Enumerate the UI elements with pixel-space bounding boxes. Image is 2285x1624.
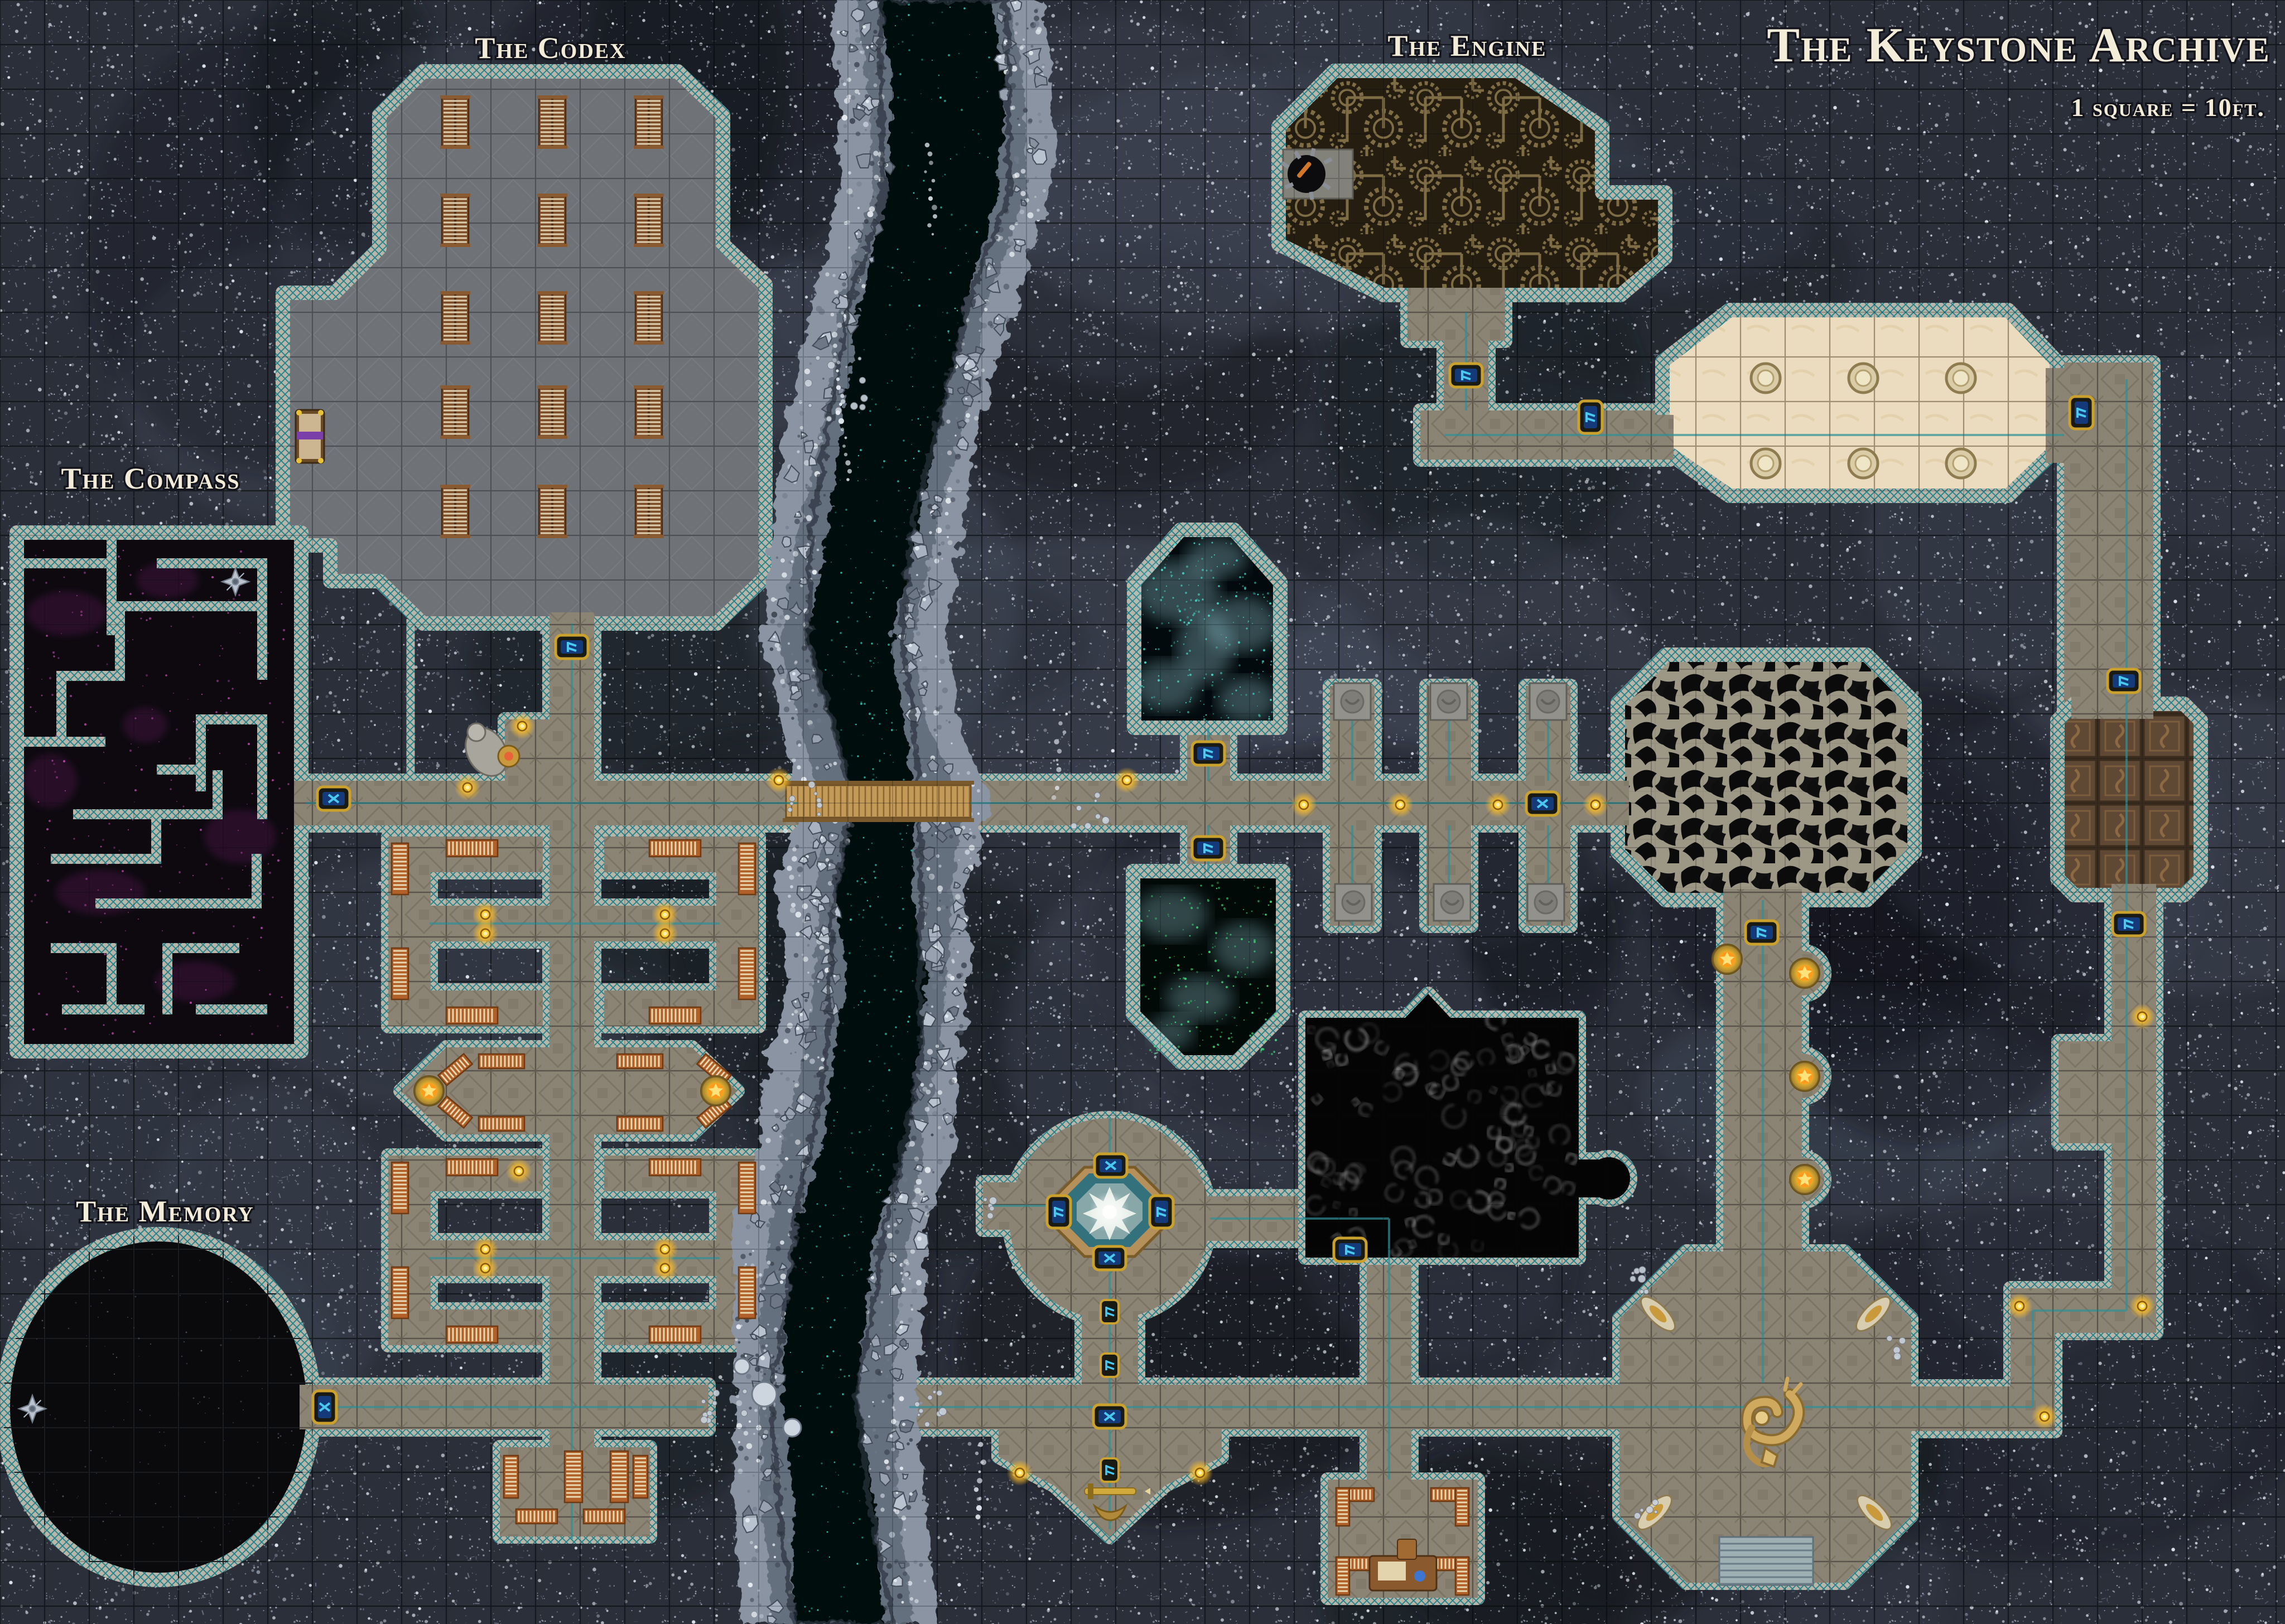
svg-text:The Memory: The Memory xyxy=(76,1195,254,1228)
svg-text:The Keystone Archive: The Keystone Archive xyxy=(1767,18,2270,72)
svg-text:The Compass: The Compass xyxy=(61,462,240,495)
svg-text:The Codex: The Codex xyxy=(475,31,626,65)
svg-text:1 square = 10ft.: 1 square = 10ft. xyxy=(2071,93,2265,122)
svg-text:The Engine: The Engine xyxy=(1387,29,1546,62)
